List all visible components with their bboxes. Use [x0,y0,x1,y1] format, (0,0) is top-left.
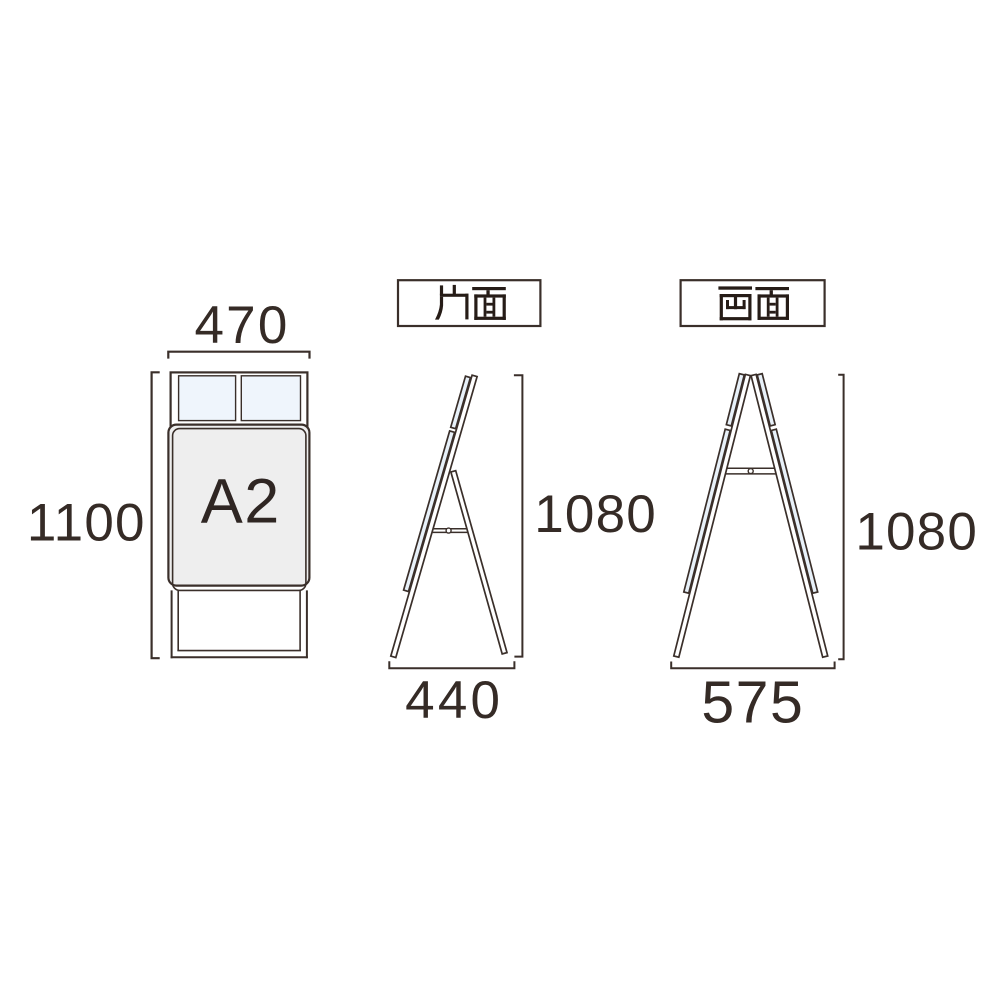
svg-text:470: 470 [194,296,289,355]
svg-text:575: 575 [701,670,804,736]
svg-text:440: 440 [405,671,503,730]
svg-text:1080: 1080 [855,503,978,562]
svg-text:1080: 1080 [534,485,657,544]
svg-text:A2: A2 [201,466,281,536]
svg-text:1100: 1100 [27,494,146,553]
